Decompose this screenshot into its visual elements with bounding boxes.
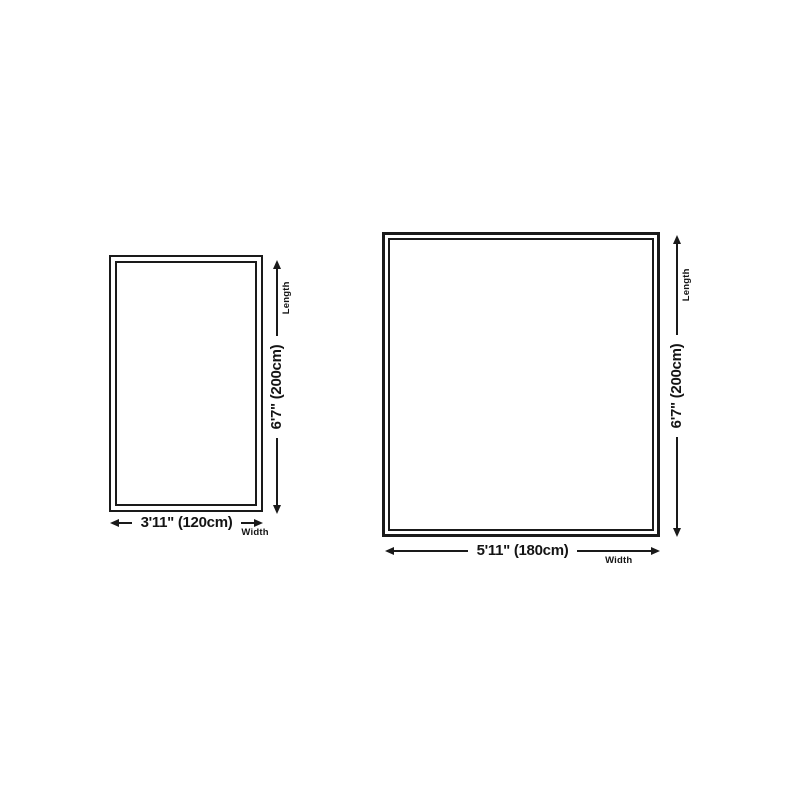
length-value-label: 6'7" (200cm) — [269, 336, 285, 439]
arrow-up-icon: Length — [669, 235, 685, 335]
width-caption: Width — [241, 527, 263, 538]
rug-rectangle-large — [382, 232, 660, 537]
width-dimension-large: 5'11" (180cm) Width — [385, 543, 660, 559]
length-caption: Length — [681, 235, 692, 335]
length-dimension-large: 6'7" (200cm) Length — [669, 235, 685, 537]
arrow-left-icon — [110, 515, 132, 531]
width-caption: Width — [577, 555, 660, 566]
arrow-right-icon: Width — [577, 543, 660, 559]
width-dimension-small: 3'11" (120cm) Width — [110, 515, 263, 531]
arrow-left-icon — [385, 543, 468, 559]
size-diagram: 3'11" (120cm) Width 6'7" (200cm) Length … — [0, 0, 800, 800]
arrow-up-icon: Length — [269, 260, 285, 336]
rug-rectangle-small — [109, 255, 263, 512]
length-value-label: 6'7" (200cm) — [669, 335, 685, 438]
arrow-right-icon: Width — [241, 515, 263, 531]
rug-inner-border — [115, 261, 257, 506]
length-dimension-small: 6'7" (200cm) Length — [269, 260, 285, 514]
rug-inner-border — [388, 238, 654, 531]
arrow-down-icon — [669, 437, 685, 537]
width-value-label: 3'11" (120cm) — [132, 515, 242, 531]
arrow-down-icon — [269, 438, 285, 514]
length-caption: Length — [281, 260, 292, 336]
width-value-label: 5'11" (180cm) — [468, 543, 578, 559]
